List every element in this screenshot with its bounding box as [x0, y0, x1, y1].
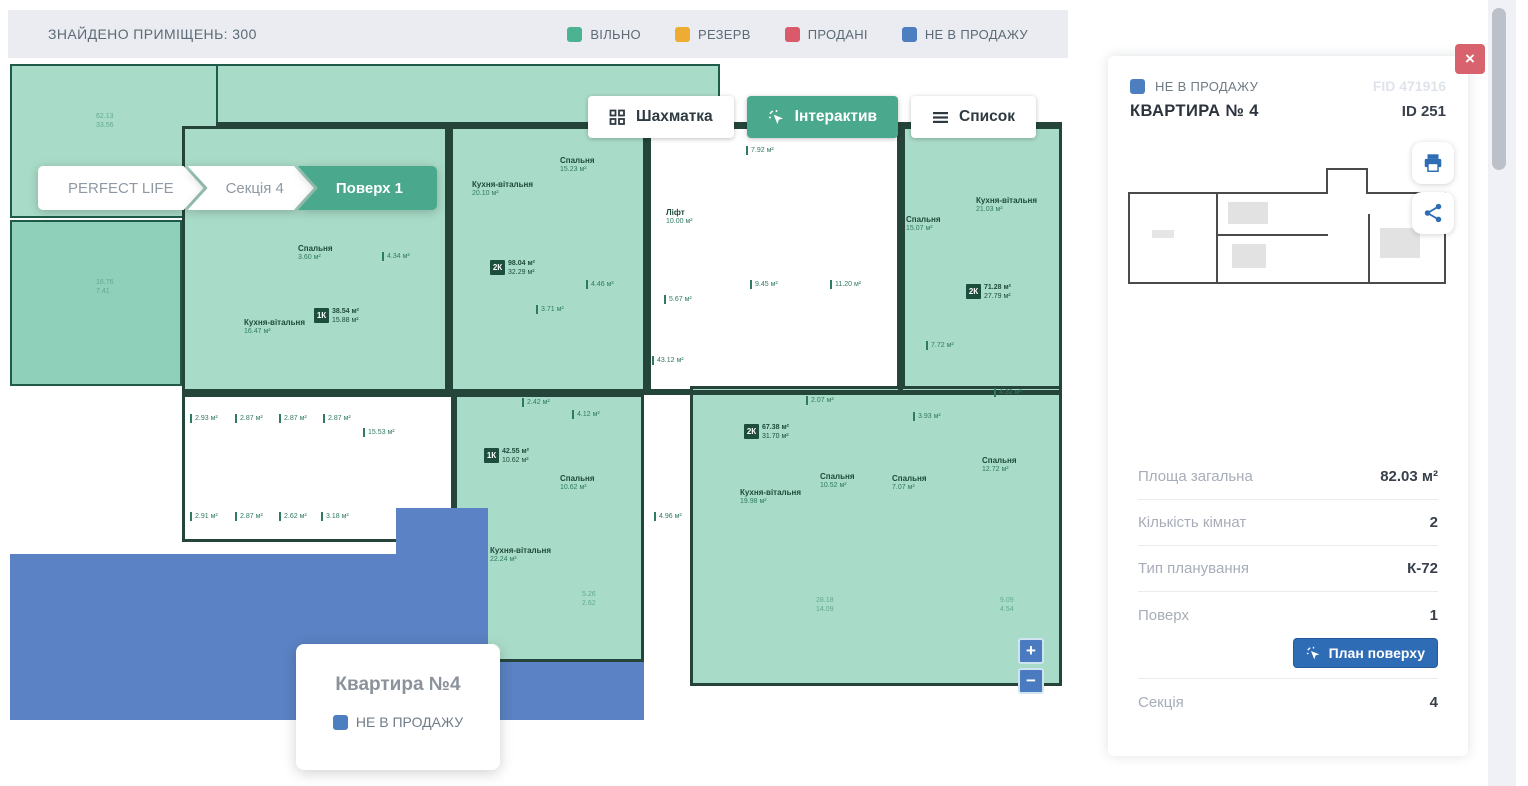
detail-value: 2 [1430, 514, 1438, 531]
detail-row-Поверх: Поверх1 [1138, 592, 1438, 638]
tooltip-status-label: НЕ В ПРОДАЖУ [356, 714, 463, 730]
top-bar: ЗНАЙДЕНО ПРИМІЩЕНЬ: 300 ВІЛЬНОРЕЗЕРВПРОД… [8, 10, 1068, 58]
breadcrumb-item-Секція 4[interactable]: Секція 4 [188, 166, 314, 210]
legend-swatch [902, 27, 917, 42]
badge-room-count: 1К [314, 308, 329, 323]
plan-area-label: Кухня-вітальня16.47 м² [244, 318, 305, 336]
found-count-label: ЗНАЙДЕНО ПРИМІЩЕНЬ: 300 [48, 26, 257, 42]
plan-area-label: Спальня10.52 м² [820, 472, 855, 490]
plan-area-label: 7.72 м² [926, 341, 954, 350]
panel-title: КВАРТИРА № 4 [1130, 102, 1259, 121]
detail-row-Площа загальна: Площа загальна82.03 м² [1138, 454, 1438, 500]
plan-apartment-badge-2К: 2К67.38 м²31.70 м² [744, 424, 789, 441]
apartment-detail-panel: НЕ В ПРОДАЖУ FID 471916 КВАРТИРА № 4 ID … [1108, 56, 1468, 756]
cursor-icon [768, 109, 785, 126]
plan-area-label: 4.46 м² [586, 280, 614, 289]
badge-room-count: 2К [744, 424, 759, 439]
plan-area-label: 3.71 м² [536, 305, 564, 314]
panel-fid: FID 471916 [1373, 78, 1446, 94]
plan-wall [182, 390, 1062, 395]
detail-value: К-72 [1407, 560, 1438, 577]
badge-areas: 98.04 м²32.29 м² [508, 260, 535, 277]
plan-wall [898, 126, 903, 392]
detail-label: Поверх [1138, 607, 1189, 624]
detail-value: 82.03 м² [1380, 468, 1438, 485]
breadcrumb: PERFECT LIFEСекція 4Поверх 1 [38, 166, 437, 210]
legend-item-РЕЗЕРВ: РЕЗЕРВ [675, 27, 751, 42]
plan-area-label: Кухня-вітальня20.10 м² [472, 180, 533, 198]
plan-core-stairs [648, 126, 900, 392]
plan-apartment-2k-a[interactable] [450, 126, 646, 392]
zoom-out-button[interactable]: − [1018, 668, 1044, 694]
legend-item-ПРОДАНІ: ПРОДАНІ [785, 27, 868, 42]
status-color-swatch [333, 715, 348, 730]
plan-area-label: 9.45 м² [750, 280, 778, 289]
legend-swatch [675, 27, 690, 42]
breadcrumb-item-PERFECT LIFE[interactable]: PERFECT LIFE [38, 166, 204, 210]
detail-value: 1 [1430, 607, 1438, 624]
detail-label: Кількість кімнат [1138, 514, 1246, 531]
plan-apartment-badge-2К: 2К71.28 м²27.79 м² [966, 284, 1011, 301]
tab-Шахматка[interactable]: Шахматка [588, 96, 734, 138]
legend-swatch [567, 27, 582, 42]
tooltip-title: Квартира №4 [296, 674, 500, 696]
badge-areas: 38.54 м²15.88 м² [332, 308, 359, 325]
tab-Інтерактив[interactable]: Інтерактив [747, 96, 898, 138]
legend-label: ПРОДАНІ [808, 27, 868, 42]
plan-area-label: 4.12 м² [572, 410, 600, 419]
zoom-in-button[interactable]: + [1018, 638, 1044, 664]
badge-areas: 71.28 м²27.79 м² [984, 284, 1011, 301]
plan-area-label: 2.42 м² [522, 398, 550, 407]
plan-apartment-badge-2К: 2К98.04 м²32.29 м² [490, 260, 535, 277]
floor-plan-canvas[interactable]: 62.1333.5616.767.41Спальня3.60 м²Кухня-в… [8, 60, 1066, 722]
cursor-click-icon [1306, 646, 1321, 661]
detail-label: Тип планування [1138, 560, 1249, 577]
print-button[interactable] [1412, 142, 1454, 184]
plan-area-label: 2.91 м² [190, 512, 218, 521]
plan-area-label: 9.094.54 [1000, 596, 1014, 614]
plan-area-left[interactable] [10, 220, 182, 386]
plan-area-label: 3.93 м² [913, 412, 941, 421]
plan-area-label: 2.87 м² [235, 512, 263, 521]
close-panel-button[interactable]: × [1455, 44, 1485, 74]
share-button[interactable] [1412, 192, 1454, 234]
legend-item-ВІЛЬНО: ВІЛЬНО [567, 27, 641, 42]
badge-room-count: 2К [490, 260, 505, 275]
legend-item-НЕ В ПРОДАЖУ: НЕ В ПРОДАЖУ [902, 27, 1028, 42]
plan-area-label: 3.18 м² [321, 512, 349, 521]
section-label: Секція [1138, 694, 1184, 711]
detail-row-Кількість кімнат: Кількість кімнат2 [1138, 500, 1438, 546]
panel-id: ID 251 [1402, 103, 1446, 120]
status-color-swatch [1130, 79, 1145, 94]
breadcrumb-step-wrap: Поверх 1 [314, 166, 437, 210]
badge-room-count: 2К [966, 284, 981, 299]
plan-area-label: 5.262.62 [582, 590, 596, 608]
plan-area-label: Спальня10.62 м² [560, 474, 595, 492]
tab-Список[interactable]: Список [911, 96, 1036, 138]
plan-area-label: Ліфт10.00 м² [666, 208, 693, 226]
legend-label: НЕ В ПРОДАЖУ [925, 27, 1028, 42]
plan-area-label: 4.32 м² [994, 388, 1022, 397]
detail-rows: Площа загальна82.03 м²Кількість кімнат2Т… [1138, 454, 1438, 638]
breadcrumb-step-wrap: PERFECT LIFE [38, 166, 204, 210]
list-icon [932, 109, 949, 126]
plan-area-label: 2.07 м² [806, 396, 834, 405]
legend-label: ВІЛЬНО [590, 27, 641, 42]
floor-plan-button-label: План поверху [1329, 645, 1425, 661]
plan-wall [446, 126, 451, 392]
legend-label: РЕЗЕРВ [698, 27, 751, 42]
plan-area-label: 2.62 м² [279, 512, 307, 521]
plan-area-label: 4.96 м² [654, 512, 682, 521]
grid-icon [609, 109, 626, 126]
plan-apartment-badge-1К: 1К38.54 м²15.88 м² [314, 308, 359, 325]
floor-plan-button[interactable]: План поверху [1293, 638, 1438, 668]
legend-swatch [785, 27, 800, 42]
plan-apartment-badge-1К: 1К42.55 м²10.62 м² [484, 448, 529, 465]
plan-area-label: Кухня-вітальня19.98 м² [740, 488, 801, 506]
tooltip-status: НЕ В ПРОДАЖУ [296, 714, 500, 730]
section-value: 4 [1430, 694, 1438, 711]
badge-areas: 42.55 м²10.62 м² [502, 448, 529, 465]
detail-label: Площа загальна [1138, 468, 1253, 485]
plan-area-label: Спальня15.07 м² [906, 215, 941, 233]
breadcrumb-step-wrap: Секція 4 [204, 166, 314, 210]
plan-wall [644, 126, 649, 392]
share-icon [1422, 202, 1444, 224]
plan-area-label: 5.67 м² [664, 295, 692, 304]
plan-area-label: 2.87 м² [235, 414, 263, 423]
plan-area-label: 62.1333.56 [96, 112, 114, 130]
detail-row-Тип планування: Тип плануванняК-72 [1138, 546, 1438, 592]
plan-area-label: Кухня-вітальня22.24 м² [490, 546, 551, 564]
plan-area-label: 2.93 м² [190, 414, 218, 423]
plan-area-label: 16.767.41 [96, 278, 114, 296]
apartment-plan-thumbnail [1128, 168, 1450, 288]
plan-area-label: Спальня12.72 м² [982, 456, 1017, 474]
tab-label: Шахматка [636, 108, 713, 126]
panel-status-label: НЕ В ПРОДАЖУ [1155, 79, 1258, 94]
apartment-tooltip: Квартира №4 НЕ В ПРОДАЖУ [296, 644, 500, 770]
badge-areas: 67.38 м²31.70 м² [762, 424, 789, 441]
view-mode-tabs: ШахматкаІнтерактивСписок [588, 96, 1036, 138]
printer-icon [1422, 152, 1444, 174]
badge-room-count: 1К [484, 448, 499, 463]
plan-apartment-2k-b[interactable] [902, 126, 1062, 392]
plan-area-label: Спальня15.23 м² [560, 156, 595, 174]
plan-area-label: 2.87 м² [323, 414, 351, 423]
scrollbar-thumb[interactable] [1492, 8, 1506, 170]
plan-area-label: 7.92 м² [746, 146, 774, 155]
plan-area-label: Спальня7.07 м² [892, 474, 927, 492]
plan-area-label: 15.53 м² [363, 428, 395, 437]
plan-area-label: Кухня-вітальня21.03 м² [976, 196, 1037, 214]
breadcrumb-item-Поверх 1[interactable]: Поверх 1 [298, 166, 437, 210]
status-legend: ВІЛЬНОРЕЗЕРВПРОДАНІНЕ В ПРОДАЖУ [567, 27, 1028, 42]
plan-area-label: 11.20 м² [830, 280, 861, 289]
plan-area-label: 2.87 м² [279, 414, 307, 423]
tab-label: Інтерактив [795, 108, 877, 126]
plan-area-label: 43.12 м² [652, 356, 684, 365]
plan-area-label: Спальня3.60 м² [298, 244, 333, 262]
plan-area-label: 4.34 м² [382, 252, 410, 261]
tab-label: Список [959, 108, 1015, 126]
plan-area-label: 28.1814.09 [816, 596, 834, 614]
